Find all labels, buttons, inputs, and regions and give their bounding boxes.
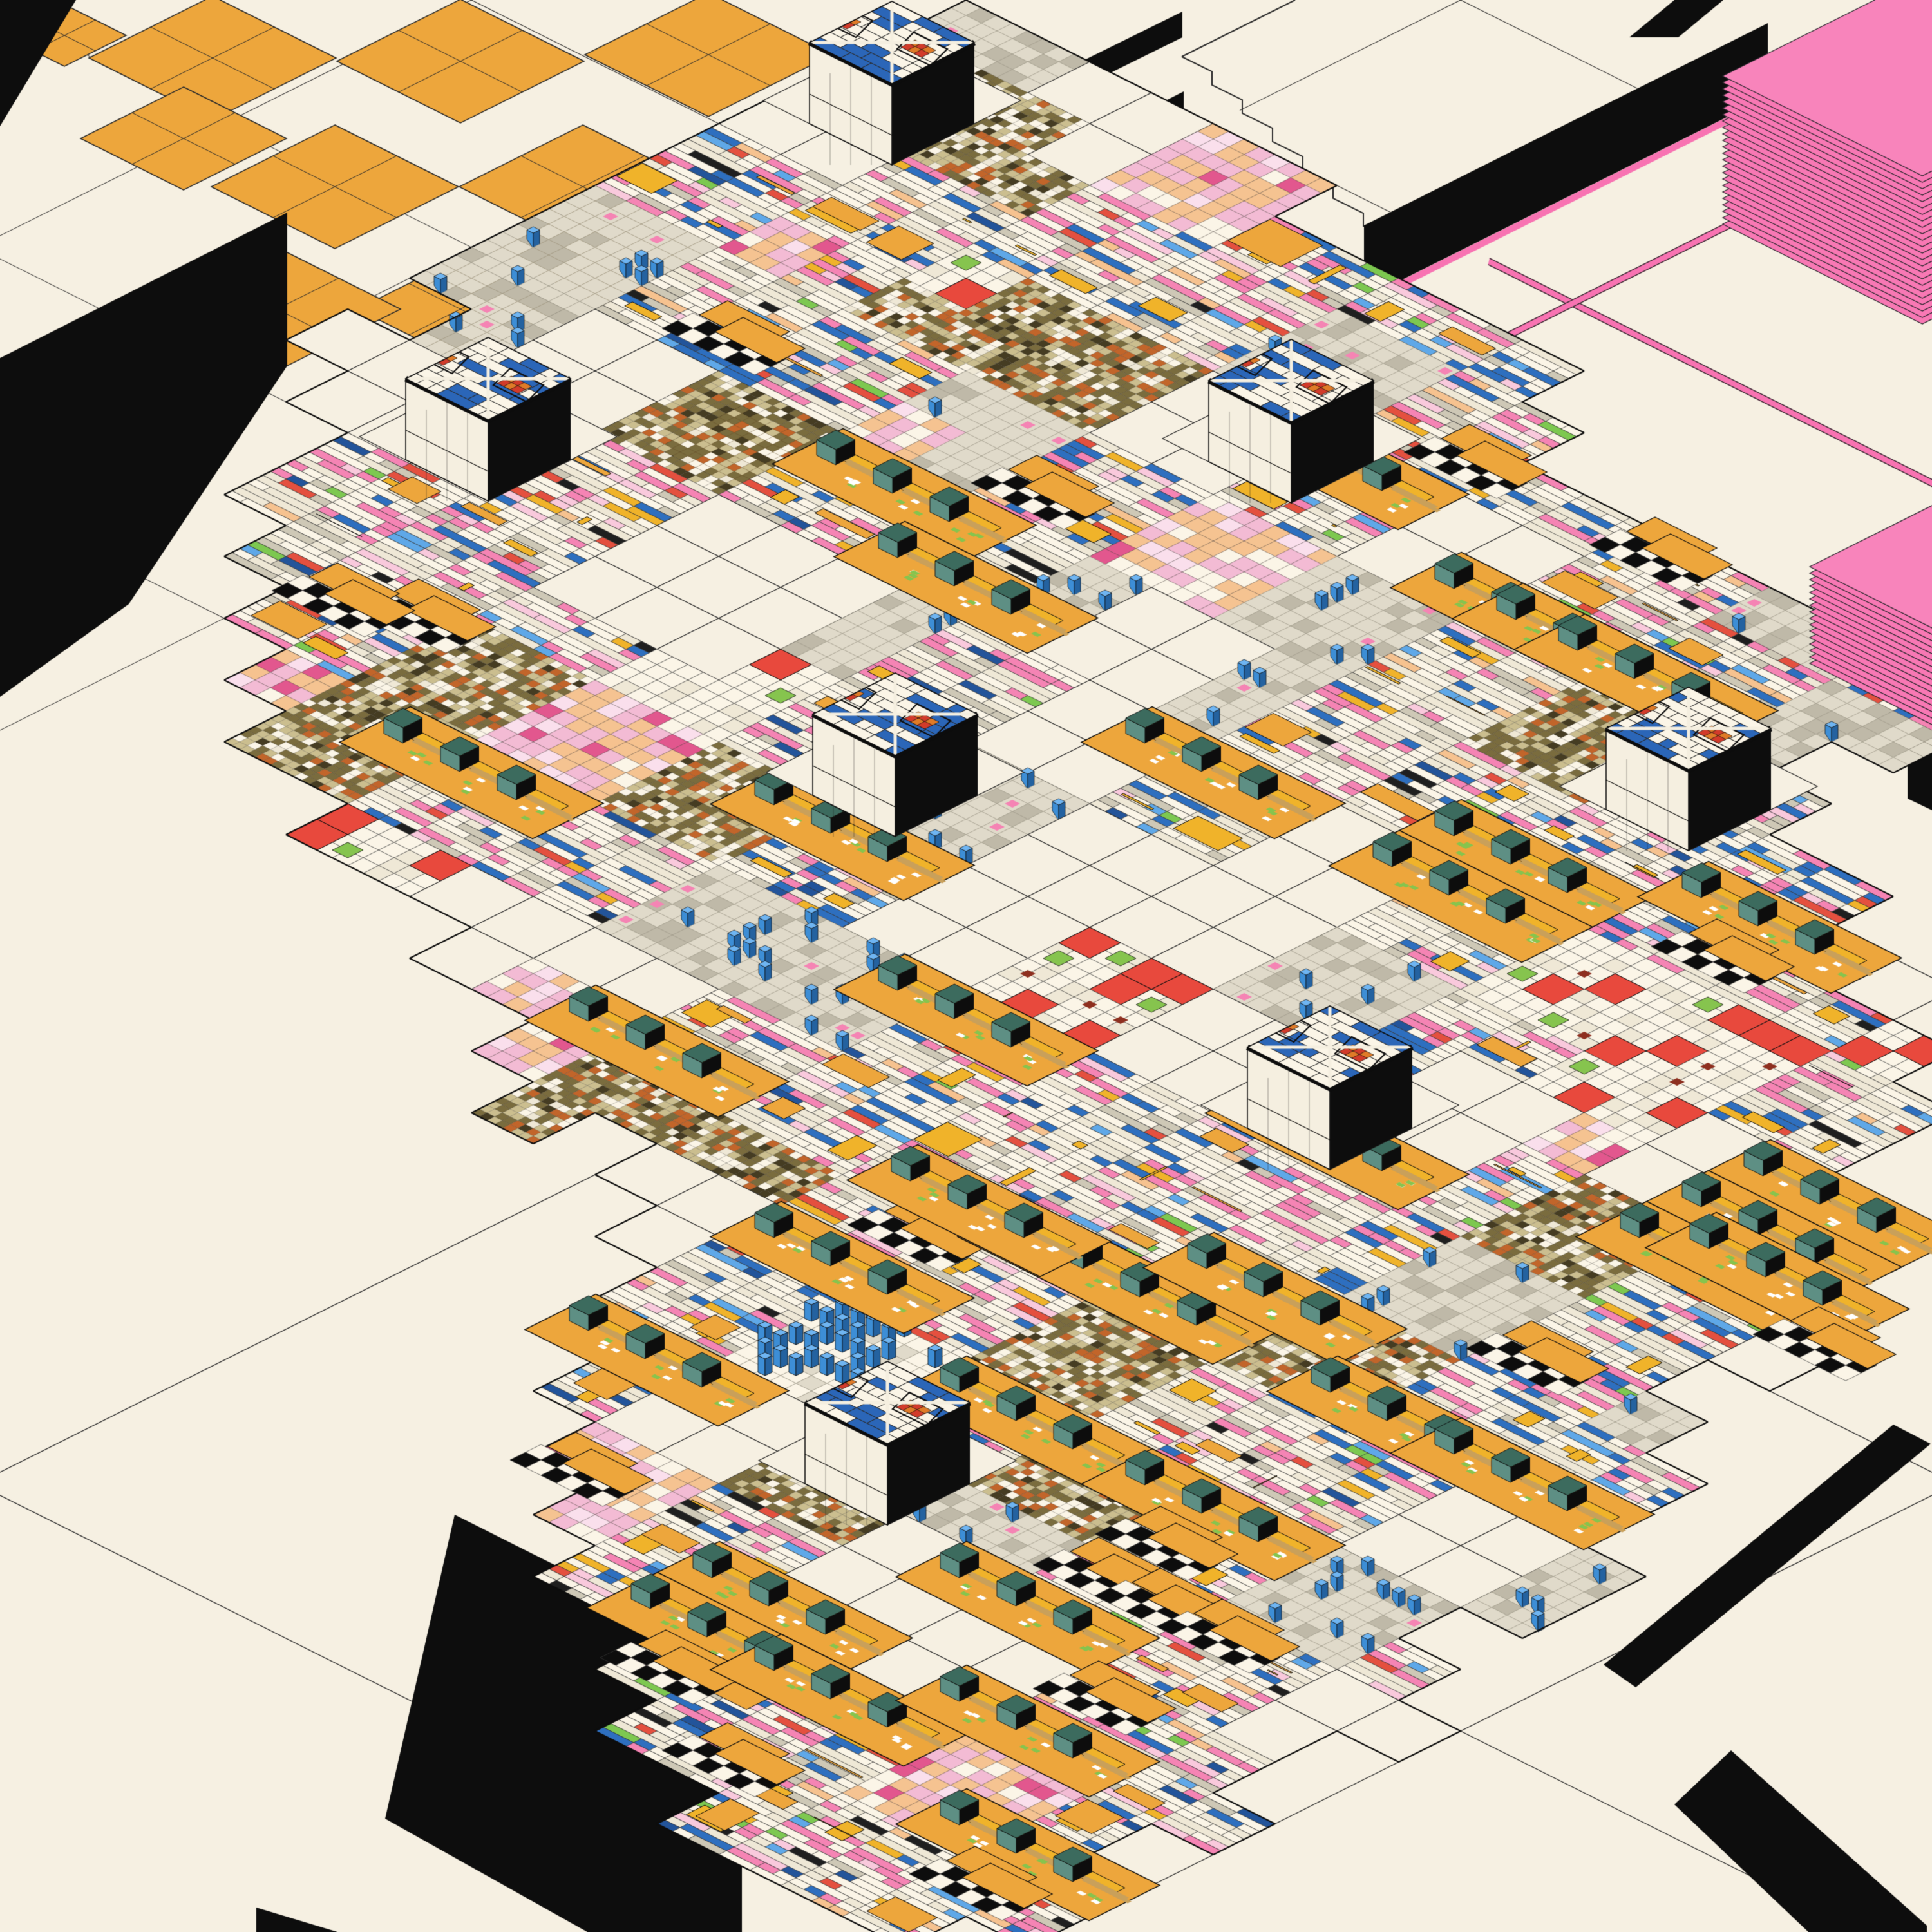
artwork-stage — [0, 0, 1932, 1932]
isometric-artwork-canvas — [0, 0, 1932, 1932]
